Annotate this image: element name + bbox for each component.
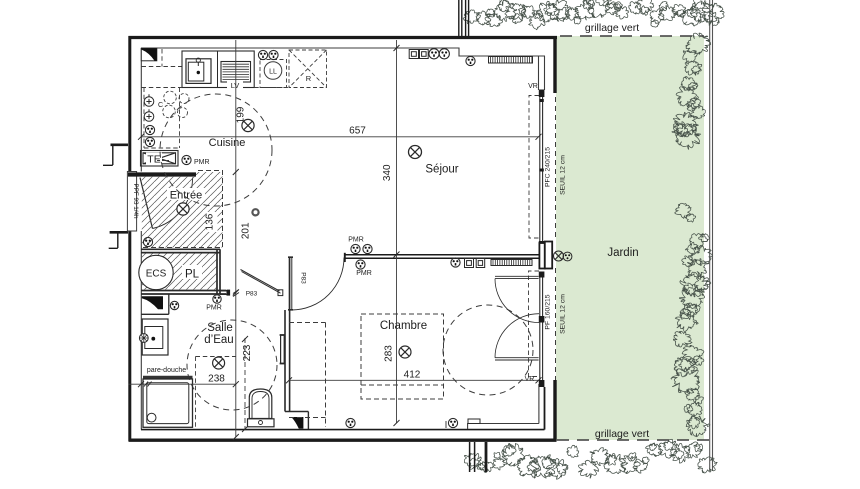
svg-text:223: 223 [242,344,253,361]
svg-text:C: C [158,102,163,109]
svg-text:201: 201 [241,222,252,239]
svg-text:Jardin: Jardin [607,247,638,259]
svg-text:grillage vert: grillage vert [585,22,639,34]
svg-text:PMR: PMR [356,270,372,277]
svg-text:SEUIL 12 cm: SEUIL 12 cm [560,294,567,334]
svg-text:340: 340 [382,164,393,181]
svg-text:P83: P83 [246,291,258,298]
svg-text:VR: VR [525,376,535,383]
svg-text:pare-douche: pare-douche [147,367,186,374]
svg-text:136: 136 [205,213,216,230]
svg-text:ECS: ECS [146,269,167,280]
svg-text:Chambre: Chambre [380,320,427,332]
svg-text:PPF 93 1/4h: PPF 93 1/4h [132,183,139,219]
svg-text:LV: LV [231,81,240,90]
svg-text:PMR: PMR [194,159,210,166]
svg-text:LL: LL [269,69,277,76]
svg-text:412: 412 [404,370,421,381]
svg-text:SEUIL 12 cm: SEUIL 12 cm [560,155,567,195]
svg-text:P83: P83 [300,272,307,284]
svg-text:238: 238 [208,373,225,384]
svg-text:PL: PL [185,269,200,281]
svg-text:Cuisine: Cuisine [209,137,246,149]
svg-text:Salle: Salle [207,322,233,334]
svg-text:199: 199 [236,106,247,123]
svg-text:PMR: PMR [206,305,222,312]
svg-text:657: 657 [349,126,366,137]
svg-text:283: 283 [384,345,395,362]
svg-text:Entrée: Entrée [170,190,202,202]
svg-text:Séjour: Séjour [425,164,458,176]
svg-text:d’Eau: d’Eau [204,334,233,346]
svg-text:grillage vert: grillage vert [595,428,649,440]
svg-text:PF 160/215: PF 160/215 [545,294,552,329]
svg-text:PFC 240/215: PFC 240/215 [545,147,552,187]
svg-text:R: R [306,74,312,83]
svg-text:VR: VR [528,83,538,90]
svg-text:PMR: PMR [348,237,364,244]
svg-text:TE: TE [147,153,160,165]
